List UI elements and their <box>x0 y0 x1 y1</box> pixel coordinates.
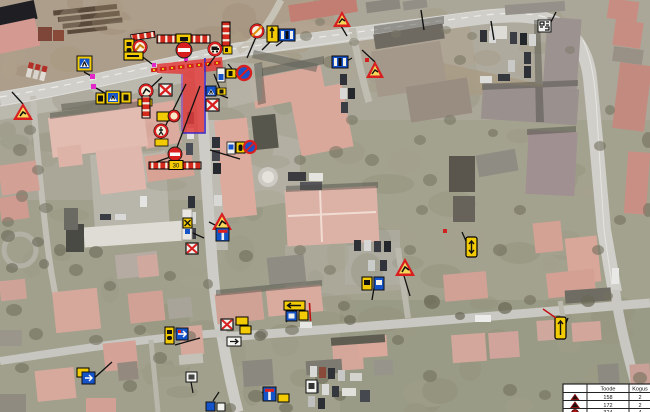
svg-text:Toode: Toode <box>601 387 616 393</box>
svg-text:30: 30 <box>173 164 180 170</box>
svg-text:158: 158 <box>603 395 612 401</box>
svg-text:172: 172 <box>603 403 612 409</box>
svg-text:2: 2 <box>638 395 641 401</box>
svg-text:Kogus: Kogus <box>632 387 648 393</box>
svg-text:2: 2 <box>638 403 641 409</box>
